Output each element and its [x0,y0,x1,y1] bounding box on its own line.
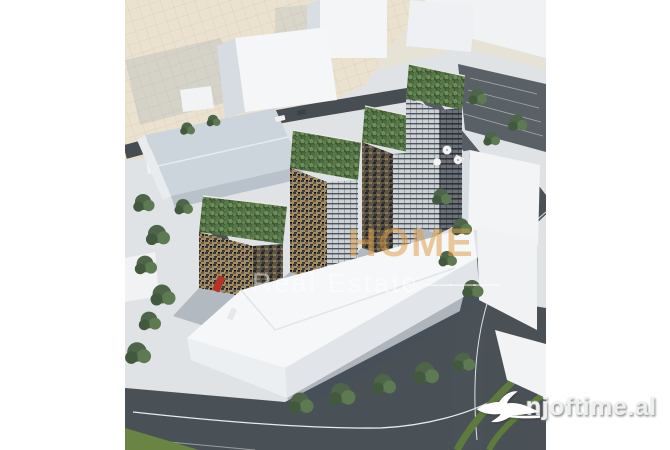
tower-4 [406,64,465,234]
watermark-tagline-text: Real Estate [252,268,419,298]
site-logo-text: njoftime.al [526,393,657,422]
watermark-brand-text: HOME [348,221,474,266]
watermark-dash: ——— [425,268,497,298]
screenshot-canvas: HOME Real Estate——— njoftime.al [0,0,670,450]
property-render-photo [125,0,546,450]
watermark-tagline: Real Estate——— [252,268,497,299]
site-logo: njoftime.al [474,388,657,426]
render-scene [125,0,546,450]
swallow-bird-icon [474,388,540,426]
